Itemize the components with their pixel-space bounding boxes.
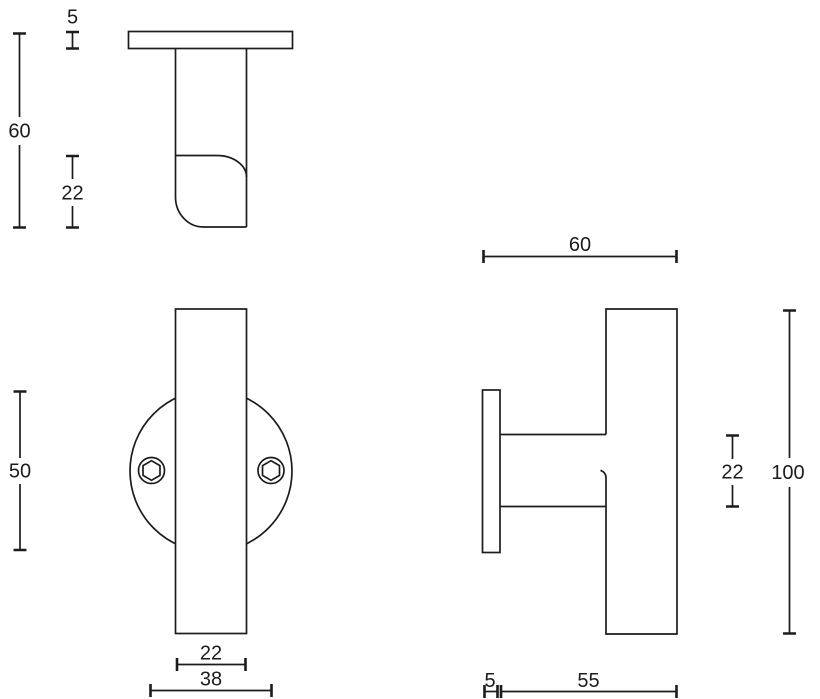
dim-label: 5 — [67, 7, 78, 29]
dim-label: 60 — [8, 121, 30, 143]
dim-label: 22 — [721, 462, 743, 484]
dim-top-overall-projection: 60 — [8, 34, 30, 228]
technical-drawing-page: 5 60 22 — [0, 0, 820, 699]
top-view-bar-bottom-profile — [176, 197, 247, 227]
dim-label: 55 — [577, 670, 599, 692]
dim-label: 60 — [569, 234, 591, 256]
dim-front-rosette-diameter: 50 — [9, 392, 31, 551]
dim-label: 100 — [771, 462, 804, 484]
hex-socket-icon — [143, 461, 160, 481]
dim-top-bar-section: 22 — [61, 156, 83, 228]
top-view-bar-top-profile — [176, 156, 247, 178]
dim-front-screw-spacing: 38 — [151, 669, 272, 698]
view-front: 50 22 38 — [9, 309, 292, 697]
dim-side-depth: 55 — [501, 670, 677, 698]
dim-side-bar-height: 100 — [771, 311, 804, 634]
top-view-rosette-plate — [129, 32, 293, 49]
technical-drawing: 5 60 22 — [0, 0, 820, 699]
dim-label: 50 — [9, 461, 31, 483]
dim-side-neck-diameter: 22 — [721, 436, 743, 507]
dim-front-bar-width: 22 — [177, 643, 246, 672]
front-view-screw-right — [258, 458, 284, 484]
view-top: 5 60 22 — [8, 7, 292, 228]
dim-label: 22 — [200, 643, 222, 665]
side-view-rosette-plate — [483, 390, 501, 553]
dim-label: 38 — [200, 669, 222, 691]
dim-label: 22 — [61, 183, 83, 205]
hex-socket-icon — [263, 461, 280, 481]
dim-side-plate-thickness: 5 — [484, 670, 497, 698]
front-view-screw-left — [139, 458, 165, 484]
side-view-bar — [601, 309, 678, 634]
front-view-bar — [176, 309, 247, 634]
dim-label: 5 — [484, 670, 495, 692]
dim-side-bar-length: 60 — [484, 234, 677, 263]
view-side: 60 22 100 5 55 — [483, 234, 805, 698]
dim-top-plate-thickness: 5 — [66, 7, 79, 49]
